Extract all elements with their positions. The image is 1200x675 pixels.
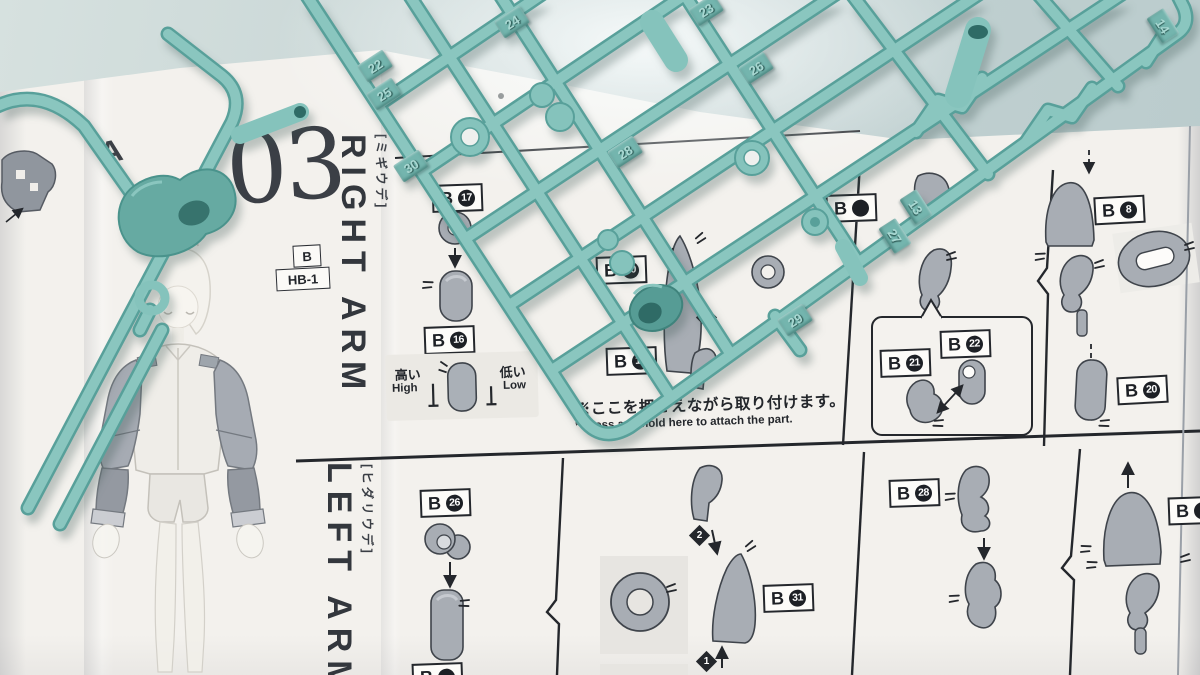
sprue-runner: 22 25 30 24 23 26 28 29 27 13 14 — [0, 0, 1200, 675]
sprue-rails — [0, 0, 1200, 675]
photo-model-kit-instructions: 03 A [ミギウデ] RIGHT ARM [ヒダリウデ] LEFT ARM B… — [0, 0, 1200, 675]
